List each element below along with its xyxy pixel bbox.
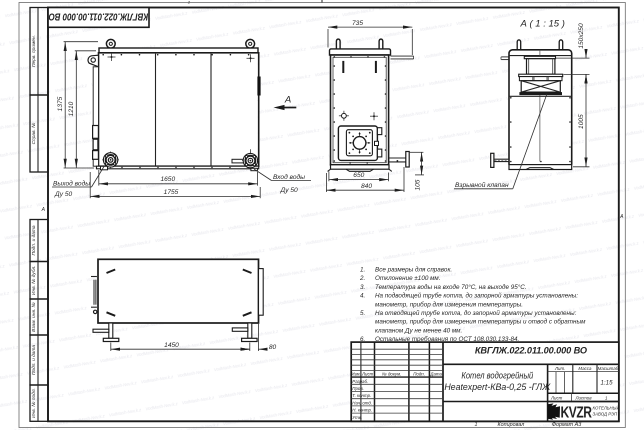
- svg-text:Инв. № подл.: Инв. № подл.: [31, 388, 37, 418]
- svg-text:Лит.: Лит.: [554, 366, 565, 371]
- svg-text:КВГЛЖ.022.011.00.000 ВО: КВГЛЖ.022.011.00.000 ВО: [49, 11, 149, 22]
- svg-text:Пров.: Пров.: [352, 386, 364, 391]
- svg-text:Перв. примен.: Перв. примен.: [31, 35, 37, 67]
- svg-text:735: 735: [352, 20, 363, 27]
- svg-text:Подп. и дата: Подп. и дата: [31, 225, 37, 255]
- svg-text:На отводящей трубе котла, до з: На отводящей трубе котла, до запорной ар…: [375, 309, 577, 317]
- svg-text:4.: 4.: [360, 293, 365, 300]
- svg-text:2.: 2.: [359, 275, 365, 282]
- svg-text:1:15: 1:15: [600, 380, 613, 387]
- svg-text:Лист: Лист: [361, 372, 374, 377]
- svg-text:Взрывной клапан: Взрывной клапан: [455, 181, 509, 189]
- svg-text:клапаном Ду не менее 40 мм.: клапаном Ду не менее 40 мм.: [375, 327, 462, 334]
- svg-text:1375: 1375: [57, 96, 64, 111]
- svg-text:Копировал: Копировал: [498, 422, 525, 428]
- svg-text:1650: 1650: [160, 176, 175, 183]
- svg-text:Справ. №: Справ. №: [31, 123, 37, 145]
- svg-text:1.: 1.: [360, 267, 365, 274]
- svg-text:манометр, прибор для измерения: манометр, прибор для измерения температу…: [375, 300, 523, 308]
- svg-text:Вход воды: Вход воды: [273, 173, 305, 181]
- svg-text:Инв. № дубл.: Инв. № дубл.: [31, 265, 37, 295]
- svg-text:Ду 50: Ду 50: [280, 187, 299, 194]
- svg-text:Отклонение ±100 мм.: Отклонение ±100 мм.: [375, 275, 440, 282]
- svg-text:650: 650: [353, 172, 364, 179]
- svg-text:А ( 1 : 15 ): А ( 1 : 15 ): [520, 19, 565, 30]
- svg-text:Утв.: Утв.: [352, 415, 362, 420]
- svg-text:80: 80: [269, 344, 277, 351]
- svg-text:Heatexpert-КВа-0,25 -ГЛЖ: Heatexpert-КВа-0,25 -ГЛЖ: [444, 382, 551, 392]
- svg-text:Масштаб: Масштаб: [598, 366, 619, 371]
- svg-text:Лист: Лист: [550, 395, 563, 400]
- svg-text:Выход воды: Выход воды: [53, 179, 90, 187]
- svg-text:Дата: Дата: [429, 372, 442, 377]
- svg-text:Взам. инв. №: Взам. инв. №: [31, 302, 37, 332]
- svg-text:105: 105: [415, 179, 422, 190]
- svg-text:1: 1: [475, 422, 478, 428]
- svg-text:150х250: 150х250: [578, 23, 585, 49]
- svg-text:Формат А3: Формат А3: [552, 422, 582, 428]
- svg-text:Все размеры для справок.: Все размеры для справок.: [375, 266, 452, 274]
- svg-text:А: А: [41, 207, 46, 213]
- svg-text:840: 840: [361, 183, 372, 190]
- svg-text:А: А: [619, 214, 624, 220]
- svg-text:Н. контр.: Н. контр.: [352, 408, 372, 413]
- svg-text:1755: 1755: [164, 189, 179, 196]
- svg-text:5.: 5.: [360, 310, 365, 317]
- svg-text:ЗАВОД РЭП: ЗАВОД РЭП: [593, 412, 619, 417]
- svg-text:Ду 50: Ду 50: [54, 191, 73, 198]
- svg-text:3.: 3.: [360, 284, 365, 291]
- svg-text:Температура воды на входе 70°С: Температура воды на входе 70°С, на выход…: [375, 283, 527, 291]
- svg-text:манометр, прибор для измерения: манометр, прибор для измерения температу…: [375, 318, 586, 326]
- svg-text:Разраб.: Разраб.: [352, 379, 368, 384]
- svg-text:Подп.: Подп.: [413, 372, 425, 377]
- svg-text:КОТЕЛЬНЫЙ: КОТЕЛЬНЫЙ: [593, 405, 621, 410]
- svg-text:Подп. и дата: Подп. и дата: [31, 345, 37, 375]
- svg-text:Листов: Листов: [575, 395, 593, 400]
- svg-text:Котел водогрейный: Котел водогрейный: [461, 371, 533, 381]
- svg-text:KVZR: KVZR: [561, 403, 592, 421]
- svg-text:На подводящей трубе котла, до: На подводящей трубе котла, до запорной а…: [375, 292, 578, 300]
- svg-text:Изм.: Изм.: [351, 372, 360, 377]
- svg-text:Нач. отд.: Нач. отд.: [352, 400, 372, 405]
- svg-text:А: А: [284, 95, 291, 106]
- svg-text:КВГЛЖ.022.011.00.000 ВО: КВГЛЖ.022.011.00.000 ВО: [475, 345, 587, 355]
- svg-text:Масса: Масса: [578, 366, 592, 371]
- svg-text:Т. контр.: Т. контр.: [352, 393, 371, 398]
- svg-text:№ докум.: № докум.: [382, 372, 401, 377]
- svg-text:1005: 1005: [578, 114, 585, 129]
- svg-text:1450: 1450: [164, 342, 179, 349]
- svg-text:1210: 1210: [68, 101, 75, 116]
